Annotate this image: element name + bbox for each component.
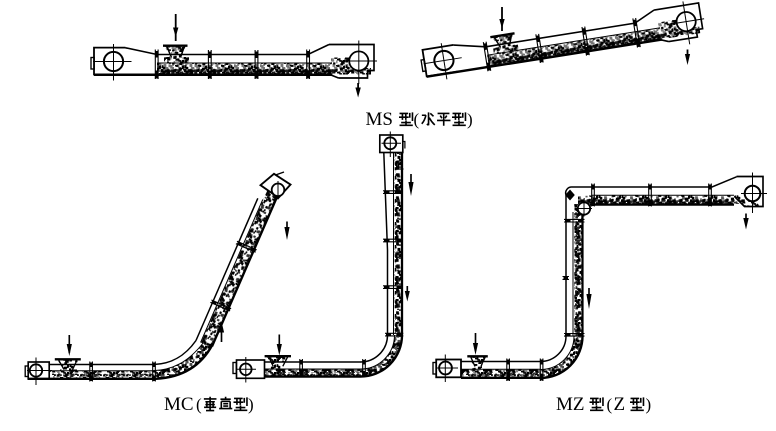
svg-text:): ) — [646, 395, 652, 414]
svg-text:(: ( — [196, 395, 202, 414]
svg-text:): ) — [467, 110, 473, 129]
svg-text:MC: MC — [164, 394, 194, 415]
svg-text:MZ: MZ — [556, 394, 585, 415]
svg-text:MS: MS — [366, 109, 393, 130]
svg-text:(: ( — [414, 110, 420, 129]
svg-text:): ) — [248, 395, 254, 414]
svg-text:(: ( — [607, 395, 613, 414]
svg-text:Z: Z — [614, 394, 626, 415]
